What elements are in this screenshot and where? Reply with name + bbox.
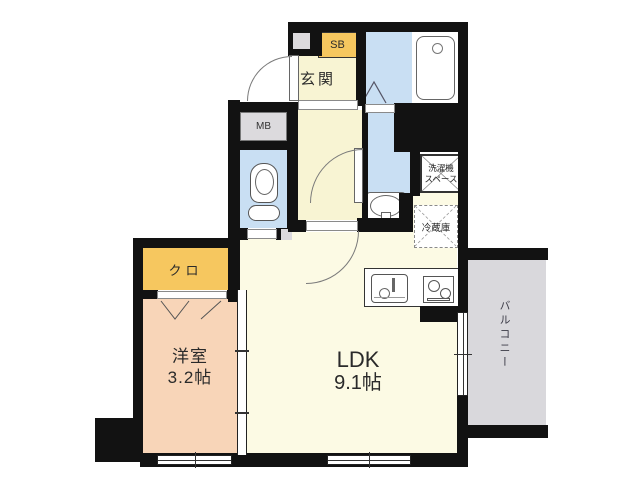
stove-grill bbox=[427, 298, 450, 301]
wall-balcony-top bbox=[468, 248, 548, 260]
bathtub-icon bbox=[416, 36, 455, 100]
balcony-window bbox=[457, 312, 468, 396]
wall-pillar bbox=[95, 418, 140, 462]
wall-left-column bbox=[228, 100, 240, 240]
wall-mb-toilet bbox=[240, 141, 287, 150]
ldk-name: LDK bbox=[334, 347, 382, 372]
pipe-space-box bbox=[293, 33, 310, 49]
ldk-floor bbox=[240, 232, 457, 453]
toilet-door-opening bbox=[247, 229, 277, 239]
genkan-label: 玄関 bbox=[300, 68, 358, 89]
ldk-bottom-window bbox=[327, 455, 411, 465]
balcony-label: バルコニー bbox=[496, 300, 512, 410]
bathtub-faucet-icon bbox=[432, 43, 443, 54]
hall-ldk-door-opening bbox=[306, 221, 358, 231]
window-tick bbox=[195, 452, 196, 468]
western-room-name: 洋室 bbox=[168, 346, 213, 367]
wall-bath-block bbox=[394, 103, 468, 152]
genkan-step bbox=[298, 100, 358, 110]
toilet-icon bbox=[246, 163, 282, 223]
toilet-base bbox=[248, 205, 280, 221]
washing-machine-space-label: 洗濯機 スペース bbox=[419, 154, 463, 193]
ldk-label: LDK 9.1帖 bbox=[300, 347, 416, 395]
kitchen-faucet-icon bbox=[392, 278, 395, 292]
wall-corner-stub bbox=[399, 193, 413, 232]
toilet-seat bbox=[255, 169, 274, 195]
partition-tick bbox=[235, 412, 249, 414]
western-room-size: 3.2帖 bbox=[168, 367, 213, 388]
stove-icon bbox=[423, 276, 454, 303]
western-room-window bbox=[157, 455, 232, 465]
wall-closet-bottom-left bbox=[143, 290, 158, 299]
kitchen-sink-icon bbox=[371, 274, 408, 303]
wall-washroom-bottom bbox=[357, 218, 404, 232]
closet-folding-door-marks-icon bbox=[157, 299, 227, 323]
closet-door-opening bbox=[157, 291, 227, 299]
window-tick bbox=[369, 452, 370, 468]
washing-machine-label-line2: スペース bbox=[425, 174, 458, 185]
refrigerator-label: 冷蔵庫 bbox=[414, 205, 458, 248]
ldk-size: 9.1帖 bbox=[334, 372, 382, 395]
stove-burner-1 bbox=[428, 280, 440, 292]
floor-plan: 玄関 SB MB 洗濯機 スペース 冷蔵庫 LDK 9.1帖 洋室 3.2帖 ク… bbox=[0, 0, 640, 480]
bath-door-opening bbox=[365, 104, 395, 113]
meter-box-label: MB bbox=[240, 112, 287, 141]
wall-hall-ldk-left bbox=[288, 220, 306, 232]
kitchen-sink-line bbox=[374, 297, 405, 298]
wall-closet-top bbox=[133, 238, 238, 248]
western-room-label: 洋室 3.2帖 bbox=[142, 346, 238, 389]
wall-hall-west bbox=[287, 102, 298, 230]
shoe-box-label: SB bbox=[318, 32, 357, 58]
wall-balcony-bottom bbox=[468, 425, 548, 438]
room-partition bbox=[237, 290, 247, 455]
front-door-swing-arc bbox=[247, 56, 292, 101]
window-tick bbox=[454, 354, 472, 355]
closet-label: クロ bbox=[143, 248, 228, 290]
toilet-bowl bbox=[250, 163, 278, 203]
washing-machine-label-line1: 洗濯機 bbox=[425, 163, 458, 174]
